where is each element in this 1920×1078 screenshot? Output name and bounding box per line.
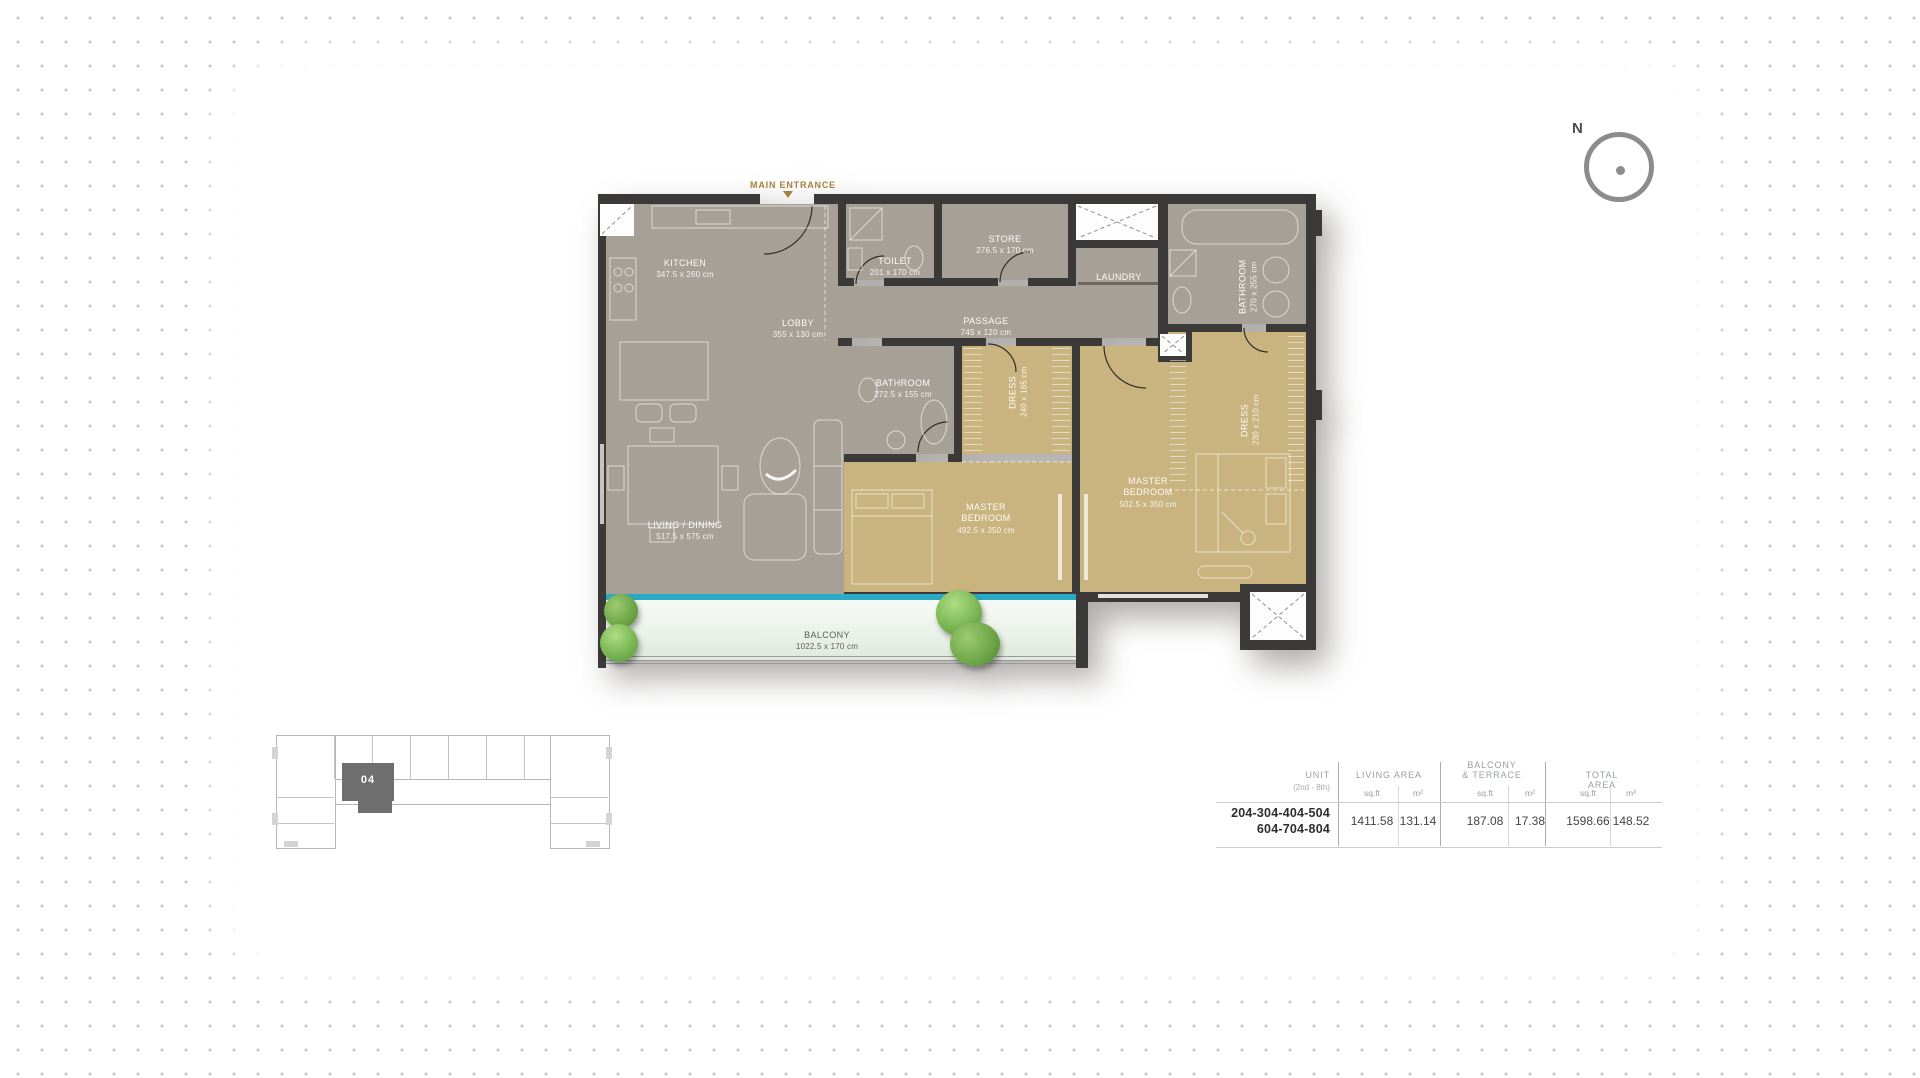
unit-label-balcony-sqft: sq.ft [1477, 788, 1493, 798]
room-label-kitchen: KITCHEN347.5 x 260 cm [625, 246, 745, 292]
table-header-unit: UNIT [1305, 770, 1330, 780]
room-label-bathroom-mid: BATHROOM272.5 x 155 cm [848, 366, 958, 412]
table-header-living-area: LIVING AREA [1356, 770, 1422, 780]
room-label-master-bedroom-1: MASTER BEDROOM492.5 x 350 cm [928, 490, 1044, 548]
north-compass: N [1572, 116, 1662, 206]
key-plan-unit-04: 04 [342, 763, 394, 801]
room-label-balcony: BALCONY1022.5 x 170 cm [766, 618, 888, 664]
room-label-toilet: TOILET201 x 170 cm [850, 244, 940, 290]
room-label-dress-right: DRESS230 x 210 cm [1228, 366, 1273, 474]
table-cell-living-sqft: 1411.58 [1351, 814, 1394, 828]
compass-ring-icon [1584, 132, 1654, 202]
table-cell-balcony-sqft: 187.08 [1467, 814, 1504, 828]
table-cell-unit-numbers: 204-304-404-504 604-704-804 [1231, 806, 1330, 837]
compass-north-label: N [1572, 120, 1583, 137]
floor-plan: MAIN ENTRANCE KITCHEN347.5 x 260 cm LOBB… [598, 194, 1316, 674]
unit-label-living-sqft: sq.ft [1364, 788, 1380, 798]
room-label-master-bedroom-2: MASTER BEDROOM502.5 x 350 cm [1090, 464, 1206, 522]
building-key-plan: 04 [276, 727, 608, 853]
unit-label-total-sqft: sq.ft [1580, 788, 1596, 798]
area-table: UNIT (2nd - 8th) LIVING AREA BALCONY & T… [1230, 762, 1662, 848]
compass-dot-icon [1616, 166, 1625, 175]
table-cell-total-sqft: 1598.66 [1566, 814, 1609, 828]
table-subheader-unit-floors: (2nd - 8th) [1293, 783, 1330, 792]
table-header-balcony-terrace: BALCONY & TERRACE [1462, 760, 1521, 781]
entrance-arrow-icon [783, 191, 793, 198]
room-label-store: STORE276.5 x 170 cm [950, 222, 1060, 268]
room-label-laundry: LAUNDRY [1076, 260, 1162, 283]
unit-label-total-m2: m² [1626, 788, 1636, 798]
main-entrance-label: MAIN ENTRANCE [728, 180, 858, 190]
key-plan-unit-label: 04 [342, 774, 394, 786]
unit-label-balcony-m2: m² [1525, 788, 1535, 798]
room-label-living-dining: LIVING / DINING517.5 x 575 cm [624, 508, 746, 554]
table-cell-total-m2: 148.52 [1613, 814, 1650, 828]
room-label-dress-mid: DRESS240 x 165 cm [996, 342, 1041, 442]
room-label-lobby: LOBBY355 x 130 cm [738, 306, 858, 352]
table-cell-balcony-m2: 17.38 [1515, 814, 1545, 828]
table-cell-living-m2: 131.14 [1400, 814, 1437, 828]
unit-label-living-m2: m² [1413, 788, 1423, 798]
room-label-bathroom-right: BATHROOM270 x 255 cm [1226, 228, 1271, 346]
